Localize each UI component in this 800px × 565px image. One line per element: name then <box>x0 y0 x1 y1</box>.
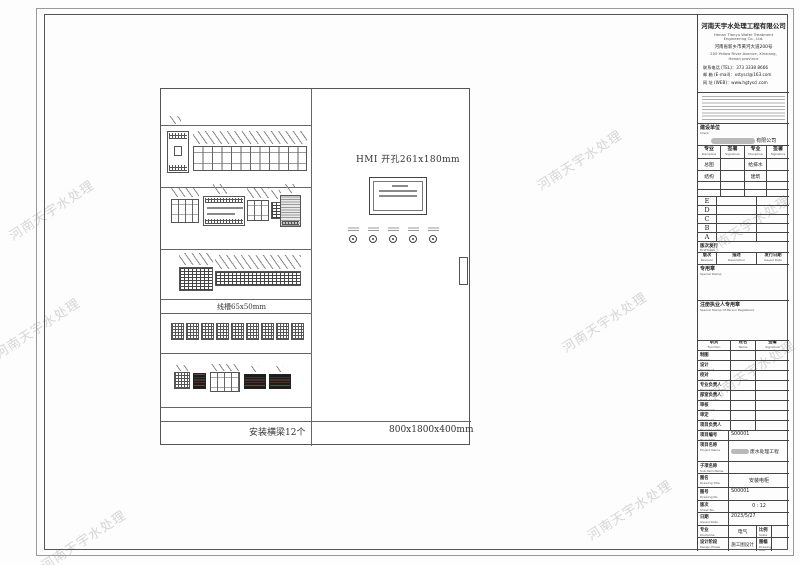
cabinet-size-label: 800x1800x400mm <box>389 425 473 435</box>
relay-tag-labels <box>179 253 213 265</box>
special-stamp-en: Special Stamp <box>700 273 787 276</box>
door-handle <box>459 257 468 285</box>
hmi-cutout-label: HMI 开孔261x180mm <box>356 152 460 165</box>
hmi-text-line <box>379 190 417 192</box>
terminal-grid <box>174 372 190 389</box>
drawing-no-row: 图号Drawing No. S00001 <box>698 487 789 500</box>
size-value <box>771 538 789 551</box>
company-address-cn: 河南省新乡市黄河大道200号 <box>698 44 789 50</box>
wire-duct-band-bottom <box>161 313 311 314</box>
discipline-row-empty <box>698 181 789 189</box>
date-value: 2023/5/27 <box>728 513 789 525</box>
company-email: 邮 箱 (E-mail)：xstyscl@163.com <box>698 72 789 78</box>
revision-row: C <box>698 214 789 223</box>
redacted-project-prefix <box>731 449 749 454</box>
lamp-label <box>368 227 379 231</box>
mccb-terminals <box>169 165 187 171</box>
phase-size-row: 设计阶段Design Phase 施工图设计 图幅Drawing size <box>698 537 789 551</box>
shelf-line <box>161 125 311 126</box>
discipline-scale-row: 专业Discipline 电气 比例Scale <box>698 525 789 537</box>
cabinet-outline: 线槽65x50mm HMI 开孔261x180mm <box>160 88 470 445</box>
revision-row: E <box>698 196 789 205</box>
disc-header-en: Discipline <box>748 153 763 156</box>
terminal-block-group <box>231 323 244 340</box>
sign-cell <box>720 171 744 181</box>
drawing-title-row: 图名Drawing Title 安装电柜 <box>698 473 789 487</box>
indicator-lamp <box>389 235 397 243</box>
relay-bank <box>215 271 301 286</box>
relay-bank <box>179 267 213 291</box>
hmi-panel <box>369 177 427 215</box>
mounting-beam-label: 安装横梁12个 <box>249 425 305 438</box>
subitem-value <box>728 462 789 473</box>
scale-value <box>771 526 789 537</box>
label-en: Drawing Title <box>700 482 726 485</box>
terminal-block-group <box>261 323 274 340</box>
discipline-row-empty <box>698 189 789 196</box>
mccb-terminals <box>169 133 187 139</box>
component-tag-label <box>174 365 190 371</box>
revision-letter: B <box>698 224 716 232</box>
project-no-row: 项目编号Project No. S00001 <box>698 430 789 440</box>
registered-stamp-box: 注册执业人专用章 Special Stamp Of Person Registe… <box>698 300 789 340</box>
sign-header-en: Signature <box>771 153 785 156</box>
plc-module <box>203 196 245 226</box>
bottom-band-line <box>161 421 471 422</box>
phase-value: 施工图设计 <box>728 538 756 551</box>
disclaimer-fine-print <box>698 92 789 123</box>
hmi-screen <box>373 181 423 211</box>
component-tag-label <box>247 188 269 198</box>
client-label-en: Client <box>700 132 787 135</box>
revision-header-row: 版次Revision 描述Description 发行日期Issued Date <box>698 252 789 264</box>
title-block: 河南天宇水处理工程有限公司 Henan Tianyu Water Treatme… <box>697 14 789 551</box>
terminal-block-group <box>171 323 184 340</box>
company-web: 网 址 (WEB)：www.hgtyscl.com <box>698 80 789 86</box>
mccb-breaker <box>167 131 189 173</box>
wire-duct-block <box>193 373 206 389</box>
label-en: Drawing size <box>759 546 769 551</box>
personnel-row: 设计Designed <box>698 360 789 370</box>
label-en: Design Phase <box>700 546 726 549</box>
drawing-title-value: 安装电柜 <box>728 474 789 487</box>
wire-duct-block <box>244 374 266 389</box>
date-row: 日期Issued Date 2023/5/27 <box>698 512 789 525</box>
component-tag-label <box>249 366 259 372</box>
indicator-lamp <box>369 235 377 243</box>
personnel-row: 校对Checked <box>698 370 789 380</box>
plc-terminals <box>205 219 243 224</box>
component-tag-label <box>285 184 295 193</box>
project-no-value: S00001 <box>728 431 789 440</box>
company-tel: 联系电话 (TEL)：373 3338 8666 <box>698 65 789 71</box>
sign-cell <box>766 171 789 181</box>
drawing-sheet: 河南天宇水处理 河南天宇水处理 河南天宇水处理 河南天宇水处理 河南天宇水处理 … <box>0 0 800 565</box>
sign-header-en: Signature <box>725 153 739 156</box>
disc-cell: 总图 <box>698 159 720 170</box>
wire-duct-label: 线槽65x50mm <box>217 302 266 312</box>
company-name-en: Henan Tianyu Water Treatment Engineering… <box>704 33 783 41</box>
desc-col-en: Description <box>728 259 745 262</box>
relay-tag-labels <box>215 255 301 269</box>
component-tag-label <box>171 188 199 197</box>
date-col-en: Issued Date <box>764 259 782 262</box>
registered-stamp-en: Special Stamp Of Person Registered <box>700 309 787 312</box>
label-en: Drawing No. <box>700 496 726 499</box>
disc-cell: 给排水 <box>744 159 766 170</box>
rev-col-en: Revision <box>701 259 714 262</box>
hmi-text-line <box>392 185 408 187</box>
label-en: Project Name <box>700 449 726 452</box>
sheet-no-value: 0 : 12 <box>728 501 789 512</box>
discipline-value: 电气 <box>728 526 756 537</box>
client-name-suffix: 有限公司 <box>756 138 776 144</box>
plc-terminals <box>205 198 243 203</box>
plc-detail <box>207 207 243 209</box>
drawing-no-value: S00001 <box>728 488 789 500</box>
disc-cell: 建筑 <box>744 171 766 181</box>
personnel-row: 项目负责人Project Leader <box>698 420 789 430</box>
mcb-group <box>210 372 240 392</box>
lamp-label <box>428 227 439 231</box>
psu-terminals <box>282 221 299 225</box>
indicator-lamp <box>429 235 437 243</box>
mcb-tag-labels <box>193 131 307 144</box>
wire-duct-band-top <box>161 299 311 300</box>
company-address-en: 200 Yellow River Avenue, Xinxiang, Henan… <box>704 52 783 60</box>
revision-letter: E <box>698 197 716 205</box>
subitem-row: 子项名称Sub-item Name <box>698 461 789 473</box>
indicator-lamp <box>409 235 417 243</box>
sheet-no-row: 版次Sheet No. 0 : 12 <box>698 500 789 512</box>
shelf-line <box>161 407 311 408</box>
company-name-cn: 河南天宇水处理工程有限公司 <box>698 20 789 30</box>
lamp-label <box>348 227 359 231</box>
discipline-row: 总图 给排水 <box>698 158 789 170</box>
revision-letter: D <box>698 206 716 214</box>
project-name-row: 项目名称Project Name 废水处理工程 <box>698 440 789 461</box>
personnel-row: 部室负责人Dept. Leader <box>698 390 789 400</box>
mccb-toggle <box>174 146 182 156</box>
terminal-block-group <box>276 323 289 340</box>
personnel-row: 审核Reviewed <box>698 400 789 410</box>
company-header: 河南天宇水处理工程有限公司 Henan Tianyu Water Treatme… <box>698 14 789 92</box>
wire-duct-block <box>269 374 291 389</box>
disc-cell: 结构 <box>698 171 720 181</box>
disc-header-en: Discipline <box>702 153 717 156</box>
label-en: Issued Date <box>700 521 726 524</box>
terminal-block-group <box>291 323 304 340</box>
sign-cell <box>766 159 789 170</box>
personnel-row: 审定Approved <box>698 410 789 420</box>
revision-row: B <box>698 223 789 232</box>
terminal-block-group <box>246 323 259 340</box>
personnel-row: 专业负责人Discipline Leader <box>698 380 789 390</box>
din-breaker-row <box>193 146 307 171</box>
special-stamp-box: 专用章 Special Stamp <box>698 264 789 300</box>
lamp-label <box>388 227 399 231</box>
shelf-line <box>161 353 311 354</box>
power-supply <box>280 195 301 227</box>
redacted-client-name <box>711 138 755 144</box>
terminal-block-group <box>201 323 214 340</box>
revision-row: A <box>698 232 789 241</box>
personnel-row: 制图Drawn <box>698 350 789 360</box>
revision-letter: A <box>698 233 716 241</box>
component-tag-label <box>213 184 227 194</box>
project-name-value: 废水处理工程 <box>750 448 779 455</box>
shelf-line <box>161 249 311 250</box>
discipline-row: 结构 建筑 <box>698 170 789 181</box>
hmi-text-line <box>379 195 417 197</box>
component-tag-label <box>274 366 284 372</box>
sign-cell <box>720 159 744 170</box>
disclaimer-text-lines <box>702 96 785 120</box>
revision-row: D <box>698 205 789 214</box>
relay-group <box>247 200 269 221</box>
first-issue-row: 版次发行 First Issue <box>698 241 789 252</box>
mcb-group <box>171 199 199 223</box>
revision-letter: C <box>698 215 716 223</box>
indicator-lamp <box>349 235 357 243</box>
breaker-tag-labels <box>210 364 240 371</box>
panel-divider-line <box>311 89 312 446</box>
component-tag-label <box>169 116 181 124</box>
terminal-block-group <box>186 323 199 340</box>
personnel-header: 职责Function 姓名Name 签署Signature <box>698 340 789 350</box>
discipline-table-header: 专业Discipline 签署Signature 专业Discipline 签署… <box>698 145 789 158</box>
lamp-label <box>408 227 419 231</box>
terminal-block-group <box>216 323 229 340</box>
client-section: 建设单位 Client 有限公司 <box>698 123 789 145</box>
plc-detail <box>207 213 235 215</box>
